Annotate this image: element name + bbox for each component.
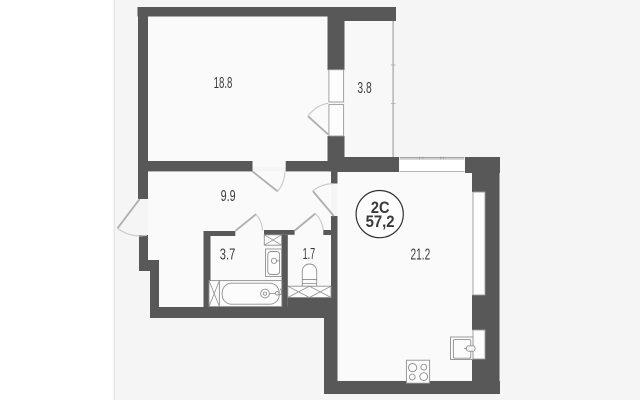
svg-text:3.8: 3.8 (357, 80, 371, 97)
svg-text:1.7: 1.7 (303, 246, 316, 263)
svg-text:18.8: 18.8 (214, 75, 233, 92)
svg-text:57,2: 57,2 (366, 212, 395, 231)
svg-text:21.2: 21.2 (411, 246, 431, 263)
svg-text:3.7: 3.7 (220, 246, 236, 263)
svg-text:9.9: 9.9 (221, 188, 236, 205)
